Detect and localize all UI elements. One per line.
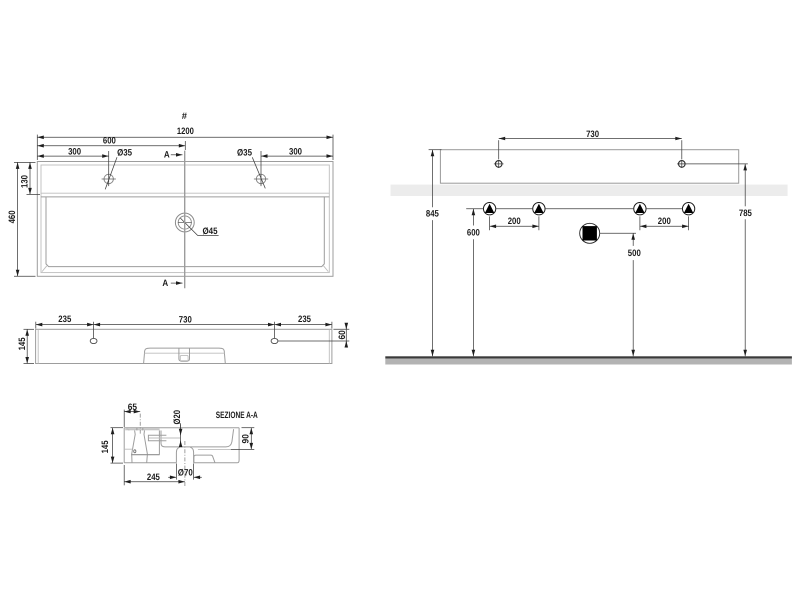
svg-text:460: 460 — [7, 210, 17, 223]
svg-text:600: 600 — [103, 136, 116, 146]
svg-text:A: A — [162, 278, 168, 288]
svg-text:235: 235 — [58, 314, 71, 324]
svg-text:Ø20: Ø20 — [172, 410, 182, 425]
svg-text:Ø35: Ø35 — [237, 147, 252, 157]
svg-text:A: A — [164, 149, 170, 159]
svg-text:Ø35: Ø35 — [117, 147, 132, 157]
svg-text:SEZIONE A-A: SEZIONE A-A — [216, 410, 258, 420]
svg-text:Ø45: Ø45 — [203, 226, 218, 236]
svg-text:60: 60 — [337, 330, 347, 339]
svg-text:90: 90 — [241, 434, 251, 443]
svg-text:130: 130 — [19, 175, 29, 188]
svg-text:145: 145 — [100, 440, 110, 453]
svg-text:300: 300 — [289, 147, 302, 157]
svg-text:200: 200 — [508, 216, 521, 226]
svg-text:300: 300 — [68, 147, 81, 157]
svg-text:785: 785 — [739, 208, 752, 218]
svg-text:#: # — [182, 111, 188, 121]
svg-text:730: 730 — [179, 314, 192, 324]
svg-text:Ø70: Ø70 — [178, 467, 193, 477]
svg-text:1200: 1200 — [177, 126, 194, 136]
svg-text:245: 245 — [147, 472, 160, 482]
svg-text:845: 845 — [426, 209, 439, 219]
svg-text:600: 600 — [467, 227, 480, 237]
svg-text:500: 500 — [628, 248, 641, 258]
svg-text:235: 235 — [298, 314, 311, 324]
svg-text:145: 145 — [17, 337, 27, 350]
svg-text:730: 730 — [586, 129, 599, 139]
svg-text:65: 65 — [128, 402, 137, 412]
svg-text:200: 200 — [658, 216, 671, 226]
